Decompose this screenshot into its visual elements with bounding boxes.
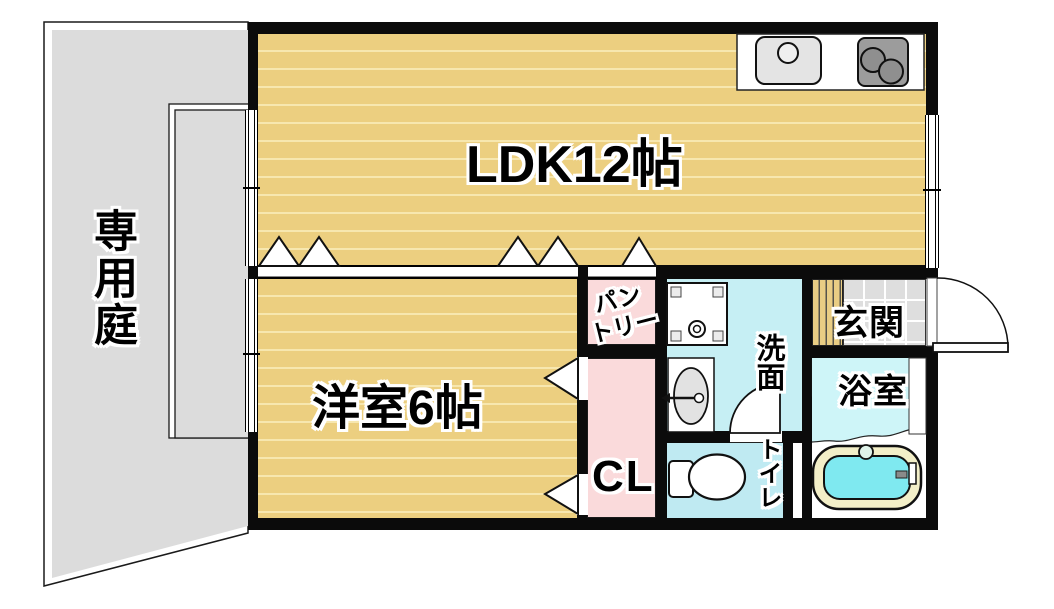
wall-bottom (248, 518, 938, 530)
wall-ldk-south (656, 265, 938, 279)
wall-top (248, 22, 938, 34)
window-left-lower (245, 279, 258, 432)
wall-center-column (802, 265, 812, 530)
sliding-door-ldk-western (258, 265, 578, 279)
wall-left-upper (248, 22, 258, 110)
ldk-label: LDK12帖 (466, 122, 683, 197)
garden-outline (44, 22, 248, 586)
wall-right-upper (926, 22, 938, 115)
wall-entrance-bath (802, 346, 938, 358)
duct-space (793, 443, 802, 518)
wall-left-stub (248, 265, 258, 279)
washroom-label: 洗面 (747, 333, 789, 391)
pantry-door-band (588, 265, 656, 279)
terrace-outline (169, 104, 257, 438)
closet-door-gap-upper (576, 357, 588, 400)
wall-washroom-toilet (656, 431, 730, 443)
entrance-label: 玄関 (833, 295, 905, 346)
wall-left-lower (248, 432, 258, 530)
bathroom-label: 浴室 (838, 364, 908, 413)
front-door-leaf (933, 343, 1008, 352)
front-door-arc-icon (938, 278, 1008, 348)
window-tick (243, 353, 260, 355)
toilet-label: トイレ (750, 437, 785, 509)
wall-right-lower (926, 350, 938, 530)
window-tick (923, 189, 941, 191)
entrance-doorway (927, 278, 937, 346)
closet-door-gap-lower (576, 474, 588, 515)
garden-label: 専用庭 (79, 208, 143, 349)
window-right-ldk (925, 115, 939, 268)
window-tick (243, 187, 260, 189)
floor-plan: 専用庭 LDK12帖 洋室6帖 パン トリー CL 洗面 トイレ 玄関 浴室 (0, 0, 1054, 609)
wall-pantry-stub (577, 265, 588, 279)
closet-label: CL (592, 452, 655, 502)
western-room-label: 洋室6帖 (312, 368, 483, 438)
